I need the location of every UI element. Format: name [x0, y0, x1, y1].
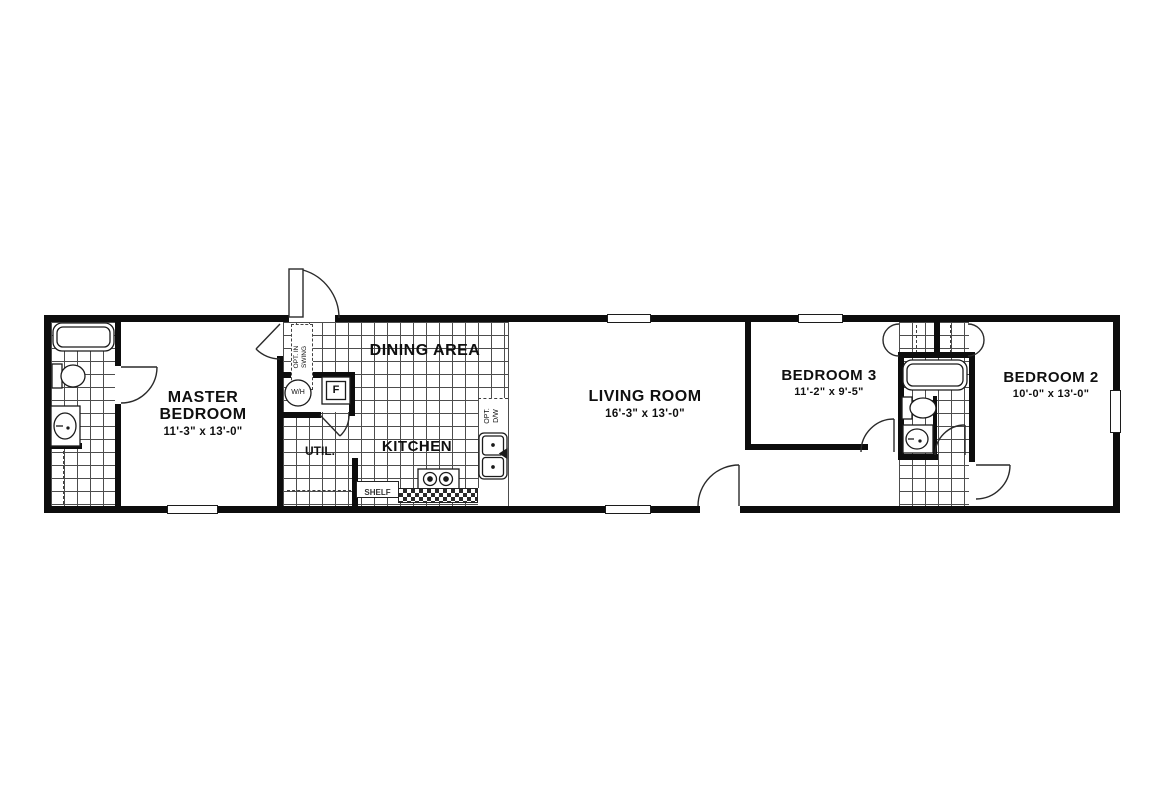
rear-sink-drain: [919, 440, 921, 442]
water-heater-label: W/H: [287, 389, 309, 396]
opt-inswing-label: OPT. IN SWING: [293, 340, 311, 374]
bedroom2-name: BEDROOM 2: [988, 370, 1114, 385]
bedroom3-name: BEDROOM 3: [770, 368, 888, 383]
dining-area-name: DINING AREA: [365, 342, 485, 359]
master-entry-door-leaf: [256, 324, 280, 349]
living-room-dims: 16'-3" x 13'-0": [575, 408, 715, 420]
rear-toilet-bowl: [910, 398, 936, 418]
bath-door-arc: [935, 425, 965, 455]
bedroom3-label: BEDROOM 3 11'-2" x 9'-5": [770, 368, 888, 398]
range-burner-left-center: [428, 477, 432, 481]
rear-door-arc: [698, 465, 739, 506]
living-room-name: LIVING ROOM: [575, 388, 715, 405]
kitchen-base-counter: [398, 488, 478, 503]
master-bathtub-inner: [57, 327, 110, 347]
master-bedroom-label: MASTER BEDROOM 11'-3" x 13'-0": [133, 389, 273, 438]
master-bedroom-name: MASTER BEDROOM: [143, 389, 263, 423]
util-label: UTIL.: [298, 444, 342, 458]
master-bedroom-dims: 11'-3" x 13'-0": [133, 426, 273, 438]
furnace-label: F: [328, 384, 344, 396]
bed3-door-arc: [861, 419, 894, 452]
bedroom3-dims: 11'-2" x 9'-5": [770, 386, 888, 398]
opt-dishwasher-label: OPT. D/W: [483, 402, 503, 430]
sink-drain-2: [492, 466, 494, 468]
floorplan-canvas: SHELF MASTER BEDROOM 11'-3" x 13'-0" DIN…: [0, 0, 1170, 785]
master-entry-door-arc: [256, 349, 280, 359]
kitchen-label: KITCHEN: [377, 439, 457, 454]
shelf-label: SHELF: [364, 488, 390, 497]
bedroom2-dims: 10'-0" x 13'-0": [988, 388, 1114, 400]
master-sink-drain: [67, 427, 69, 429]
bedroom2-label: BEDROOM 2 10'-0" x 13'-0": [988, 370, 1114, 400]
utility-door-arc: [340, 416, 349, 436]
kitchen-name: KITCHEN: [377, 439, 457, 454]
master-toilet-bowl: [61, 365, 85, 387]
front-door-arc: [303, 270, 339, 318]
kitchen-shelf: SHELF: [356, 481, 399, 498]
bed3-closet-door-arc: [883, 324, 899, 356]
bed2-closet-door-arc: [968, 324, 984, 356]
rear-bathtub-inner: [907, 364, 963, 386]
sink-drain-1: [492, 444, 494, 446]
bed2-door-arc: [976, 465, 1010, 499]
front-door-leaf: [289, 269, 303, 317]
range-burner-right-center: [444, 477, 448, 481]
dining-area-label: DINING AREA: [365, 342, 485, 359]
utility-door-leaf: [320, 415, 340, 436]
living-room-label: LIVING ROOM 16'-3" x 13'-0": [575, 388, 715, 420]
